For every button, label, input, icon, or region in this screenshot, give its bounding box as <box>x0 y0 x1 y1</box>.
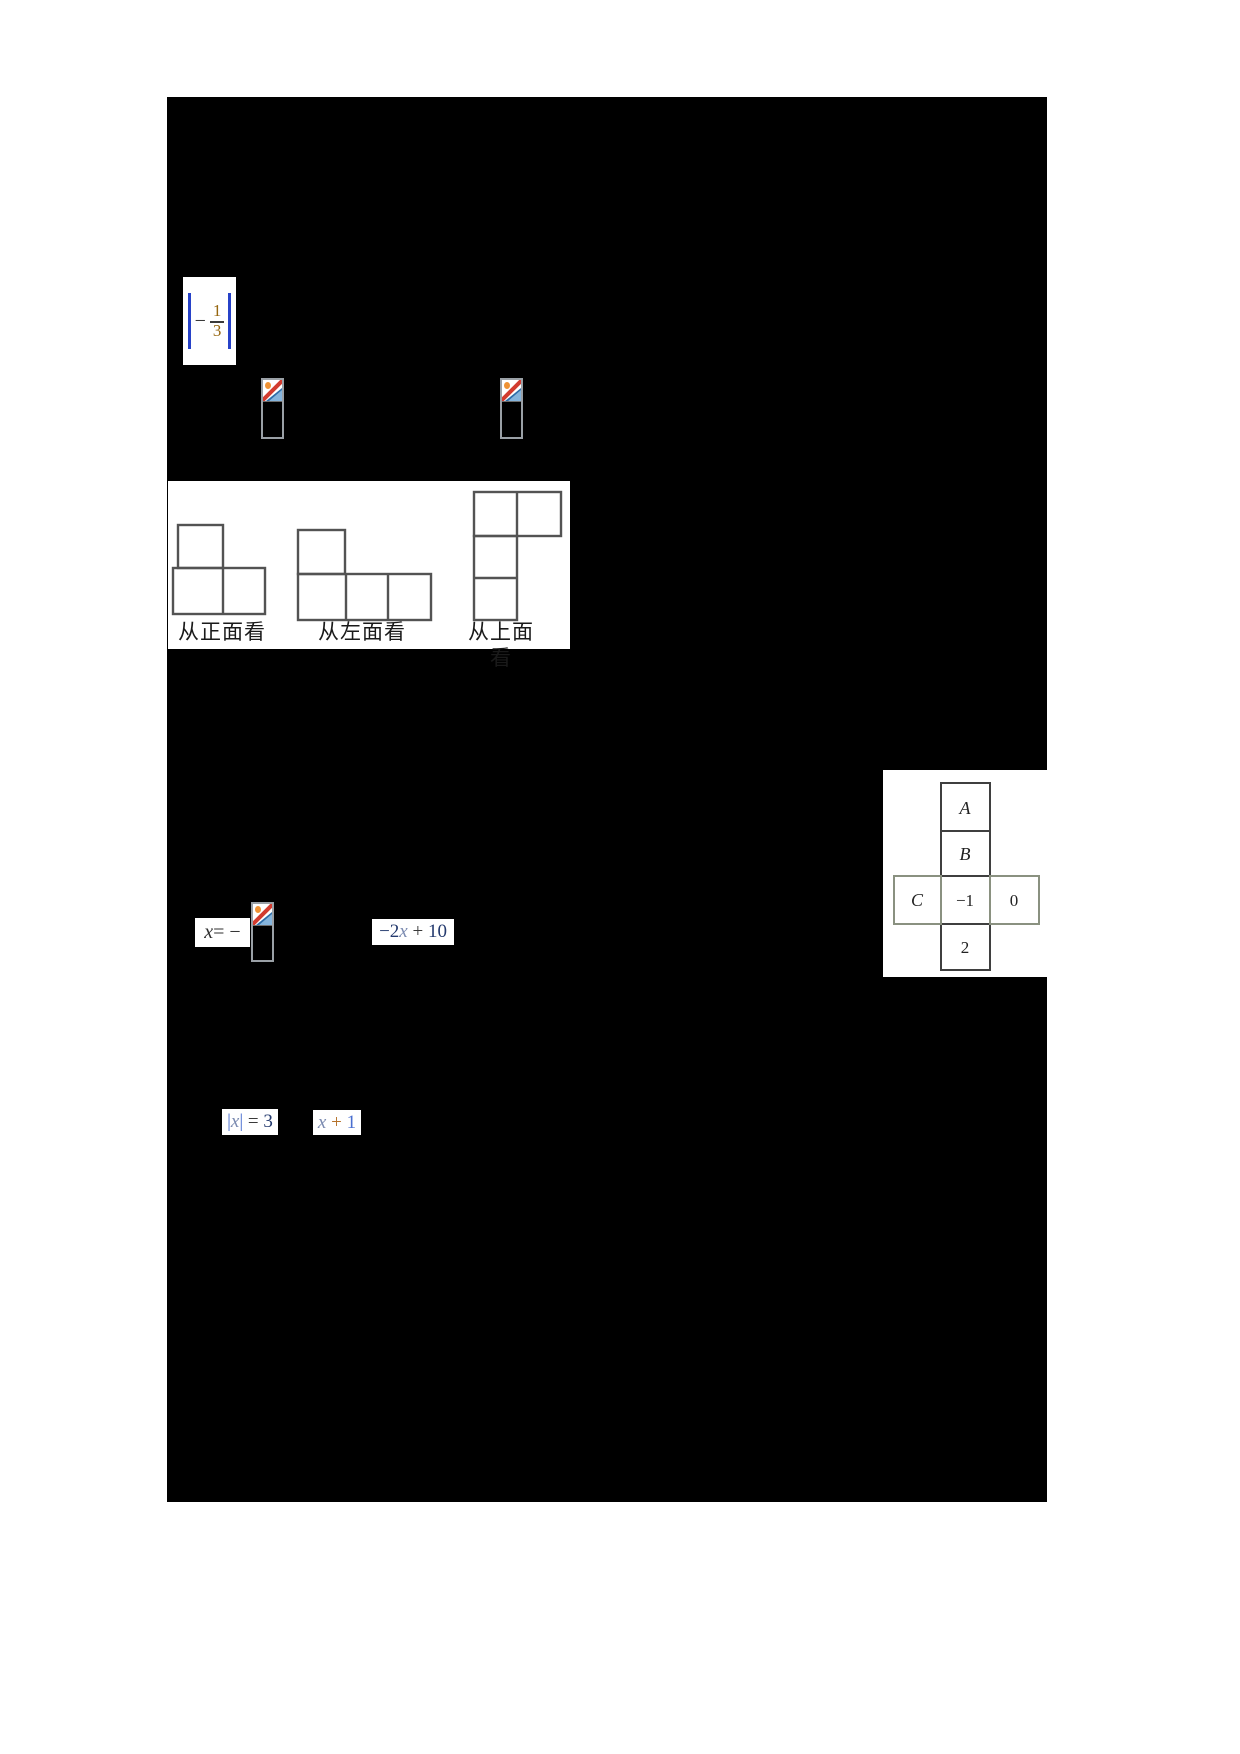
equation-linear-expression: −2x + 10 <box>372 919 454 945</box>
net-label-B: B <box>960 844 971 864</box>
equation-abs-value: |x| = 3 <box>222 1109 278 1135</box>
cube-net-drawing: A B C −1 0 2 <box>883 770 1047 977</box>
value-3: 3 <box>263 1111 273 1133</box>
variable-x: x <box>399 921 407 943</box>
three-view-figure: 从正面看 从左面看 从上面看 <box>168 481 570 649</box>
fraction-denominator: 3 <box>213 320 222 340</box>
broken-image-icon <box>502 380 521 402</box>
top-view-label: 从上面看 <box>459 620 543 646</box>
net-label-2: 2 <box>961 938 970 957</box>
broken-image-icon <box>263 380 282 402</box>
plus-sign: + <box>326 1112 346 1134</box>
net-label-A: A <box>959 798 972 818</box>
equation-x-equals: x= − <box>195 918 250 947</box>
document-page-background: − 1 3 <box>167 97 1047 1502</box>
net-label-C: C <box>911 890 924 910</box>
variable-x: x <box>231 1111 239 1133</box>
coefficient: −2 <box>379 921 399 943</box>
equals-sign: = <box>243 1111 263 1133</box>
front-view-top-square <box>178 525 223 568</box>
constant: 10 <box>428 921 447 943</box>
left-view-label: 从左面看 <box>318 620 406 646</box>
left-view-top-square <box>298 530 345 574</box>
broken-image-placeholder-2 <box>500 378 523 439</box>
minus-sign: − <box>195 311 206 331</box>
broken-image-placeholder-1 <box>261 378 284 439</box>
abs-left-bar <box>188 293 191 349</box>
equals-minus: = − <box>213 921 241 944</box>
broken-image-placeholder-3 <box>251 902 274 962</box>
cube-net-figure: A B C −1 0 2 <box>883 770 1047 977</box>
fraction-one-third: 1 3 <box>210 301 225 340</box>
net-label-minus1: −1 <box>956 891 974 910</box>
plus-sign: + <box>408 921 428 943</box>
left-view-bottom-row <box>298 574 431 620</box>
variable-x: x <box>318 1112 326 1134</box>
worksheet-screenshot: − 1 3 <box>0 0 1240 1754</box>
broken-image-icon <box>253 904 272 926</box>
variable-x: x <box>204 921 213 944</box>
equation-x-plus-one: x + 1 <box>313 1110 361 1135</box>
front-view-bottom-row <box>173 568 265 614</box>
front-view-label: 从正面看 <box>174 620 270 646</box>
equation-abs-fraction: − 1 3 <box>183 277 236 365</box>
value-1: 1 <box>347 1112 357 1134</box>
net-label-0: 0 <box>1010 891 1019 910</box>
abs-right-bar <box>228 293 231 349</box>
